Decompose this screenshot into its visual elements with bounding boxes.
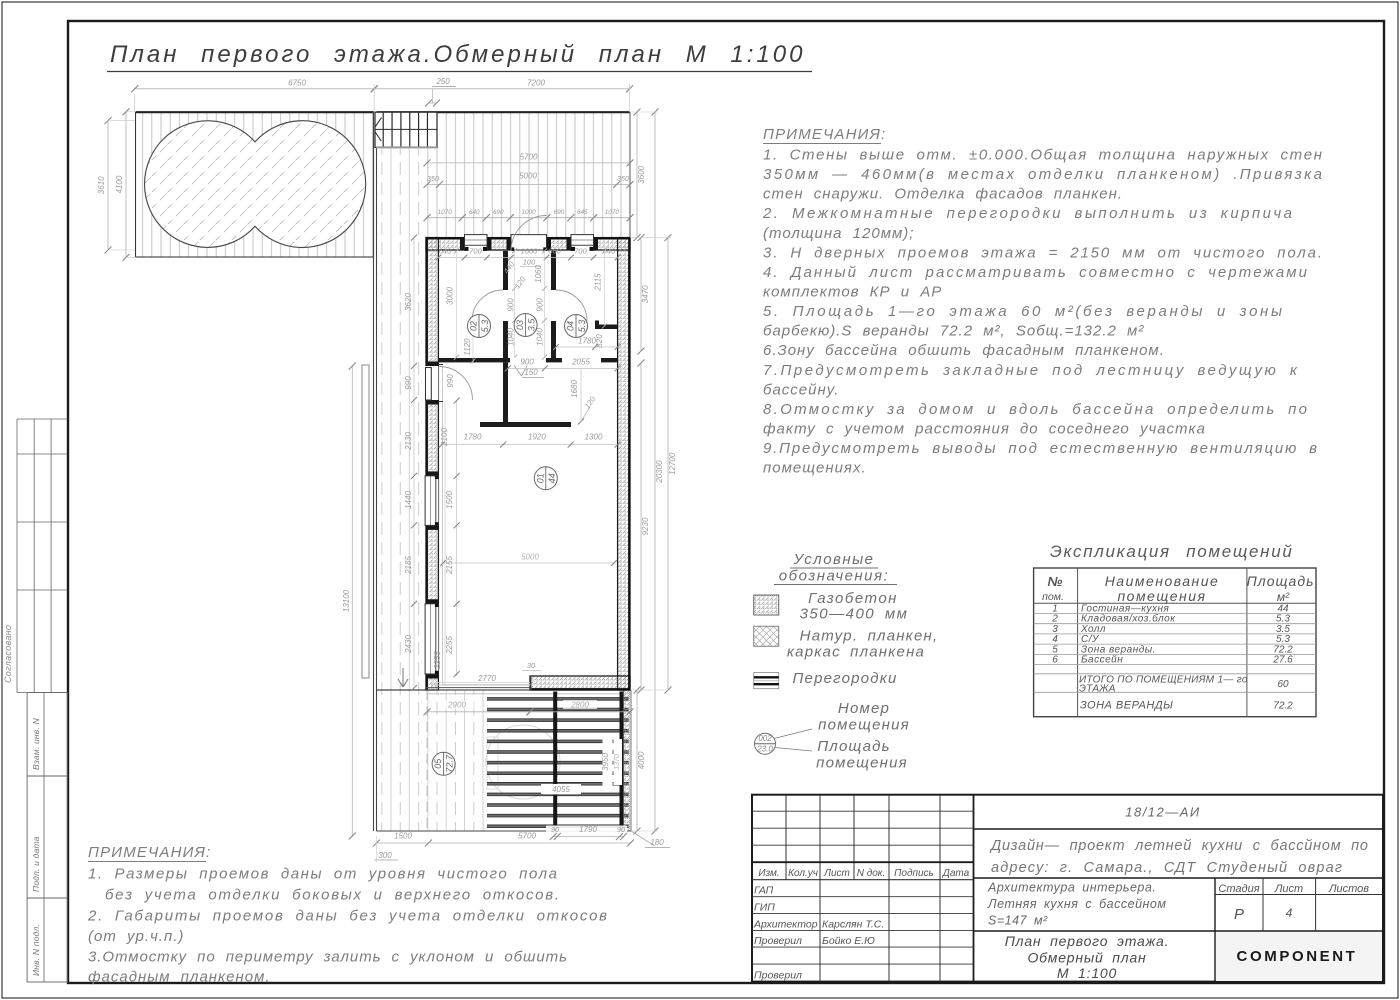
svg-text:N док.: N док. xyxy=(857,868,886,879)
svg-text:700: 700 xyxy=(469,247,482,256)
svg-text:без учета отделки боковых: без учета отделки боковых и верхнего отк… xyxy=(105,887,560,904)
svg-text:Дата: Дата xyxy=(942,868,970,879)
svg-text:1. Размеры проемов даны от: 1. Размеры проемов даны от уровня чистог… xyxy=(88,866,558,883)
svg-text:18/12—АИ: 18/12—АИ xyxy=(1125,805,1201,820)
svg-text:Кол.уч: Кол.уч xyxy=(788,868,818,879)
svg-text:9.Предусмотреть выводы под: 9.Предусмотреть выводы под естественную … xyxy=(763,440,1318,457)
svg-text:(толщина 120мм);: (толщина 120мм); xyxy=(763,225,914,242)
svg-text:3.Отмостку по периметру зал: 3.Отмостку по периметру залить с уклоном… xyxy=(88,949,568,966)
svg-text:Архитектура интерьера.: Архитектура интерьера. xyxy=(987,881,1156,895)
svg-text:002: 002 xyxy=(758,734,772,743)
svg-text:факту с учетом расстояния: факту с учетом расстояния до соседнего у… xyxy=(763,420,1206,437)
svg-text:5000: 5000 xyxy=(521,553,539,562)
svg-text:Стадия: Стадия xyxy=(1218,883,1259,895)
svg-text:1440: 1440 xyxy=(404,491,413,509)
svg-text:1300: 1300 xyxy=(585,433,603,442)
svg-text:6.Зону бассейна обшить фаса: 6.Зону бассейна обшить фасадным планкено… xyxy=(763,342,1165,359)
svg-text:1370: 1370 xyxy=(614,754,621,770)
svg-text:(от ур.ч.п.): (от ур.ч.п.) xyxy=(88,928,184,945)
svg-text:7.Предусмотреть закладные по: 7.Предусмотреть закладные под лестницу в… xyxy=(763,362,1298,379)
svg-text:Листов: Листов xyxy=(1328,883,1369,895)
svg-text:990: 990 xyxy=(404,376,413,390)
svg-text:12700: 12700 xyxy=(668,452,677,475)
svg-text:350: 350 xyxy=(427,176,439,183)
svg-text:2900: 2900 xyxy=(447,701,466,710)
svg-text:Проверил: Проверил xyxy=(754,970,802,982)
svg-text:645: 645 xyxy=(577,209,588,216)
svg-text:2430: 2430 xyxy=(404,635,413,654)
svg-text:3950: 3950 xyxy=(601,753,610,771)
svg-text:пом.: пом. xyxy=(1042,591,1064,603)
svg-text:72.2: 72.2 xyxy=(1273,701,1293,712)
svg-text:Газобетон: Газобетон xyxy=(808,590,898,607)
svg-text:1920: 1920 xyxy=(528,433,546,442)
svg-text:Р: Р xyxy=(1234,906,1244,923)
svg-text:2055: 2055 xyxy=(571,358,590,367)
svg-text:фасадным планкеном.: фасадным планкеном. xyxy=(88,969,271,986)
svg-text:900: 900 xyxy=(536,298,545,312)
svg-text:Экспликация помещений: Экспликация помещений xyxy=(1050,542,1295,561)
svg-text:Инв. N подл.: Инв. N подл. xyxy=(31,924,41,976)
svg-text:350: 350 xyxy=(617,176,629,183)
svg-text:1040: 1040 xyxy=(536,328,545,346)
svg-text:640: 640 xyxy=(439,247,452,256)
svg-text:1000: 1000 xyxy=(521,209,536,216)
svg-text:7200: 7200 xyxy=(527,79,545,88)
svg-text:9230: 9230 xyxy=(641,517,650,535)
svg-text:20300: 20300 xyxy=(655,460,664,484)
svg-text:2255: 2255 xyxy=(445,636,454,655)
svg-text:44: 44 xyxy=(547,473,557,483)
svg-text:помещения: помещения xyxy=(1117,588,1206,604)
svg-text:Взам. инв. N: Взам. инв. N xyxy=(31,717,41,770)
svg-text:690: 690 xyxy=(493,209,504,216)
svg-text:Перегородки: Перегородки xyxy=(792,670,897,687)
svg-text:Бойко Е.Ю: Бойко Е.Ю xyxy=(822,935,875,947)
svg-text:1780: 1780 xyxy=(464,433,482,442)
svg-text:адресу: г. Самара., СДТ Сту: адресу: г. Самара., СДТ Студеный овраг xyxy=(991,860,1343,876)
svg-text:3.5: 3.5 xyxy=(527,318,537,332)
svg-text:Дизайн— проект летней кухни: Дизайн— проект летней кухни с бассйном п… xyxy=(989,838,1369,854)
svg-text:4055: 4055 xyxy=(552,785,570,794)
svg-text:250: 250 xyxy=(435,77,450,86)
svg-text:23.0: 23.0 xyxy=(756,745,773,754)
svg-text:5.3: 5.3 xyxy=(577,320,587,333)
svg-text:План первого этажа.Обмерный: План первого этажа.Обмерный план М 1:100 xyxy=(110,41,807,68)
svg-text:1790: 1790 xyxy=(579,825,597,834)
svg-text:Лист: Лист xyxy=(823,868,850,879)
svg-text:640: 640 xyxy=(469,209,480,216)
svg-text:Обмерный план: Обмерный план xyxy=(1027,950,1146,966)
svg-text:1500: 1500 xyxy=(445,491,454,509)
svg-text:01: 01 xyxy=(535,473,545,483)
svg-text:1780: 1780 xyxy=(578,337,596,346)
svg-text:Натур. планкен,: Натур. планкен, xyxy=(800,628,939,645)
svg-text:690: 690 xyxy=(554,209,565,216)
svg-text:4: 4 xyxy=(1286,906,1293,920)
svg-text:5000: 5000 xyxy=(519,172,537,181)
svg-text:Площадь,: Площадь, xyxy=(1247,573,1320,589)
svg-text:1060: 1060 xyxy=(534,265,543,283)
svg-text:помещения: помещения xyxy=(816,754,908,771)
svg-text:м²: м² xyxy=(1277,590,1290,604)
svg-text:700: 700 xyxy=(574,247,587,256)
svg-text:2255: 2255 xyxy=(433,651,442,670)
svg-text:бассейну.: бассейну. xyxy=(763,381,839,398)
svg-text:900: 900 xyxy=(520,358,534,367)
svg-text:5.3: 5.3 xyxy=(480,320,490,333)
svg-text:3. Н дверных проемов этаж: 3. Н дверных проемов этажа = 2150 мм от … xyxy=(763,244,1323,261)
svg-text:3620: 3620 xyxy=(404,293,413,311)
svg-text:3600: 3600 xyxy=(637,165,646,183)
svg-text:1070: 1070 xyxy=(438,209,453,216)
svg-text:180: 180 xyxy=(650,838,664,847)
svg-text:Кладовая/хоз.блок: Кладовая/хоз.блок xyxy=(1081,613,1176,625)
svg-text:1680: 1680 xyxy=(570,380,579,398)
svg-text:8.Отмостку за домом и вдол: 8.Отмостку за домом и вдоль бассейна опр… xyxy=(763,401,1308,418)
svg-text:1500: 1500 xyxy=(394,832,412,841)
svg-text:2115: 2115 xyxy=(594,273,603,292)
svg-text:2100: 2100 xyxy=(440,428,449,447)
svg-text:ЗОНА ВЕРАНДЫ: ЗОНА ВЕРАНДЫ xyxy=(1080,700,1173,712)
svg-text:30: 30 xyxy=(527,661,536,670)
svg-text:820: 820 xyxy=(595,334,604,348)
svg-text:ПРИМЕЧАНИЯ:: ПРИМЕЧАНИЯ: xyxy=(88,844,211,861)
svg-text:350—400 мм: 350—400 мм xyxy=(800,606,909,623)
svg-text:Изм.: Изм. xyxy=(758,868,779,879)
svg-text:4. Данный лист рассматриват: 4. Данный лист рассматривать совместно с… xyxy=(763,264,1308,281)
svg-text:900: 900 xyxy=(507,298,516,312)
svg-text:1. Стены выше отм. ±0.000.: 1. Стены выше отм. ±0.000.Общая толщина … xyxy=(763,147,1323,164)
svg-text:13100: 13100 xyxy=(342,589,351,612)
svg-text:6: 6 xyxy=(1052,655,1058,666)
svg-text:Согласовано: Согласовано xyxy=(3,625,13,683)
svg-text:990: 990 xyxy=(446,374,455,388)
svg-text:72.7: 72.7 xyxy=(445,754,455,773)
svg-text:2155: 2155 xyxy=(445,556,454,575)
svg-text:М 1:100: М 1:100 xyxy=(1057,965,1117,981)
svg-text:стен снаружи. Отделка фасад: стен снаружи. Отделка фасадов планкен. xyxy=(763,186,1123,203)
svg-text:Площадь: Площадь xyxy=(817,738,891,755)
svg-text:60: 60 xyxy=(1277,679,1289,690)
svg-text:1070: 1070 xyxy=(605,209,620,216)
svg-text:02: 02 xyxy=(469,321,479,331)
svg-text:каркас планкена: каркас планкена xyxy=(787,644,925,661)
svg-text:помещениях.: помещениях. xyxy=(763,460,867,477)
svg-text:Номер: Номер xyxy=(838,700,890,717)
svg-text:2770: 2770 xyxy=(477,674,496,683)
svg-text:№: № xyxy=(1048,574,1063,589)
svg-text:План первого этажа.: План первого этажа. xyxy=(1005,933,1170,949)
svg-text:S=147 м²: S=147 м² xyxy=(988,914,1048,928)
svg-text:4000: 4000 xyxy=(637,751,646,769)
svg-text:90: 90 xyxy=(617,825,626,834)
svg-text:5. Площадь 1—го этажа 60: 5. Площадь 1—го этажа 60 м²(без веранды … xyxy=(763,303,1283,320)
svg-text:Карслян Т.С.: Карслян Т.С. xyxy=(822,919,884,931)
svg-text:Летняя кухня с бассейном: Летняя кухня с бассейном xyxy=(987,897,1166,911)
svg-text:90: 90 xyxy=(551,825,560,834)
svg-text:150: 150 xyxy=(524,368,538,377)
svg-text:2130: 2130 xyxy=(404,432,413,451)
svg-text:COMPONENT: COMPONENT xyxy=(1237,948,1358,965)
svg-text:1120: 1120 xyxy=(463,338,472,356)
svg-text:2. Межкомнатные перегородки: 2. Межкомнатные перегородки выполнить из… xyxy=(762,205,1293,222)
svg-text:Условные: Условные xyxy=(792,551,874,568)
svg-text:2185: 2185 xyxy=(404,556,413,575)
svg-text:6750: 6750 xyxy=(288,79,306,88)
svg-text:3470: 3470 xyxy=(641,285,650,303)
svg-text:350мм — 460мм(в местах отд: 350мм — 460мм(в местах отделки планкеном… xyxy=(763,166,1323,183)
svg-text:27.6: 27.6 xyxy=(1272,655,1293,666)
svg-text:ЭТАЖА: ЭТАЖА xyxy=(1079,684,1116,695)
svg-text:Наименование: Наименование xyxy=(1105,573,1220,589)
svg-text:3000: 3000 xyxy=(446,287,455,305)
svg-text:Подп. и дата: Подп. и дата xyxy=(31,836,41,892)
svg-text:04: 04 xyxy=(566,321,576,331)
svg-text:Проверил: Проверил xyxy=(754,935,802,947)
svg-text:Подпись: Подпись xyxy=(894,868,934,879)
svg-text:03: 03 xyxy=(515,320,525,330)
svg-text:ГАП: ГАП xyxy=(754,885,774,897)
svg-text:барбекю).S веранды 72.2 м²,: барбекю).S веранды 72.2 м², Sобщ.=132.2 … xyxy=(763,323,1144,340)
svg-text:Лист: Лист xyxy=(1274,883,1303,895)
svg-text:3610: 3610 xyxy=(97,176,106,194)
svg-text:300: 300 xyxy=(378,851,392,860)
svg-text:5700: 5700 xyxy=(520,152,538,161)
svg-text:Бассейн: Бассейн xyxy=(1081,655,1123,666)
svg-text:5700: 5700 xyxy=(518,832,536,841)
svg-text:ПРИМЕЧАНИЯ:: ПРИМЕЧАНИЯ: xyxy=(763,126,886,143)
svg-text:Архитектор: Архитектор xyxy=(753,919,818,931)
svg-text:4100: 4100 xyxy=(115,175,124,193)
svg-text:комплектов КР и АР: комплектов КР и АР xyxy=(763,283,942,300)
svg-text:ГИП: ГИП xyxy=(754,902,775,914)
svg-text:05: 05 xyxy=(433,758,443,769)
svg-text:1000: 1000 xyxy=(521,247,539,256)
svg-text:2. Габариты проемов даны б: 2. Габариты проемов даны без учета отдел… xyxy=(87,907,608,924)
svg-text:обозначения:: обозначения: xyxy=(779,568,889,585)
svg-text:помещения: помещения xyxy=(818,716,910,733)
svg-text:2800: 2800 xyxy=(570,701,589,710)
svg-text:660: 660 xyxy=(548,247,561,256)
